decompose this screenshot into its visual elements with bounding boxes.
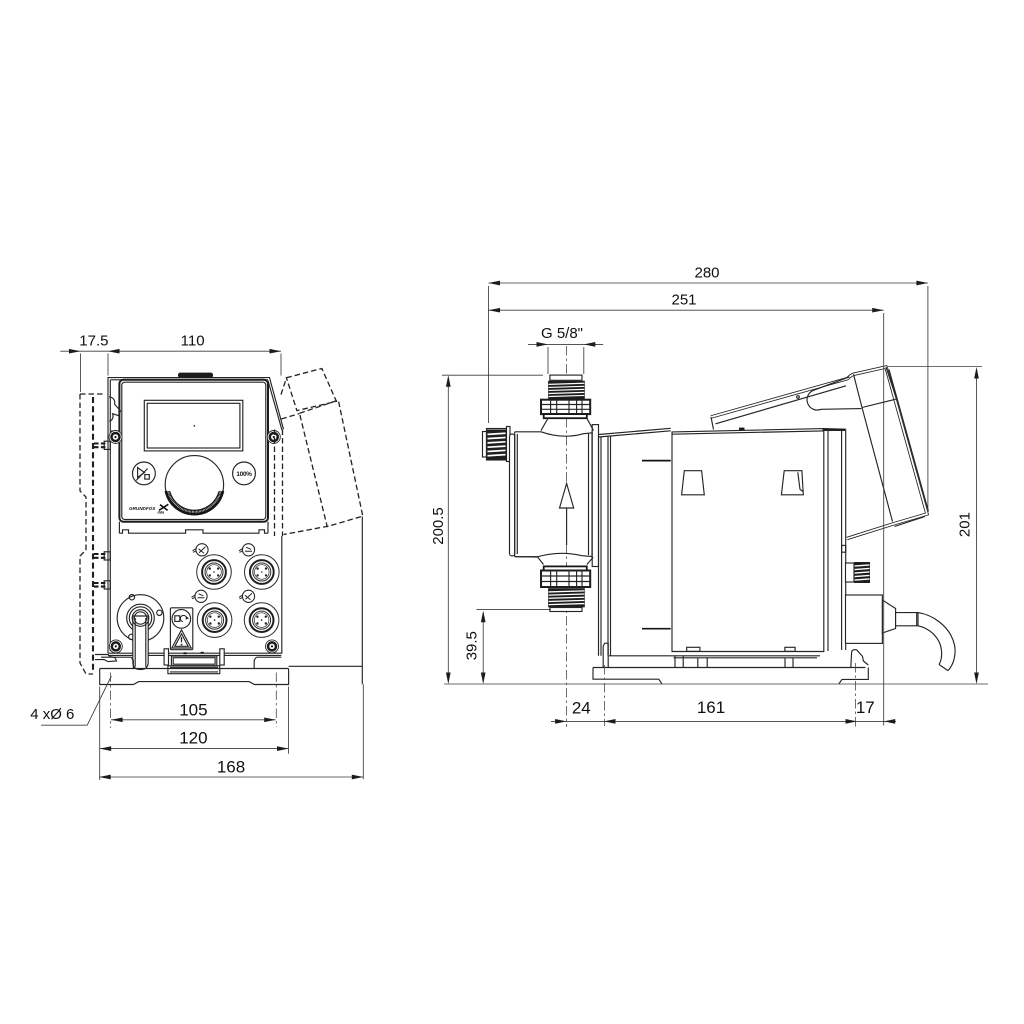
svg-text:161: 161 bbox=[697, 698, 725, 717]
svg-text:100%: 100% bbox=[236, 471, 252, 478]
svg-text:200.5: 200.5 bbox=[430, 507, 447, 545]
svg-text:105: 105 bbox=[179, 701, 207, 720]
svg-text:201: 201 bbox=[957, 512, 974, 537]
svg-text:120: 120 bbox=[179, 729, 207, 748]
svg-text:GRUNDFOS: GRUNDFOS bbox=[129, 506, 156, 511]
svg-text:251: 251 bbox=[671, 291, 696, 308]
svg-text:17: 17 bbox=[856, 698, 875, 717]
svg-text:4 xØ 6: 4 xØ 6 bbox=[30, 706, 74, 723]
svg-text:dda: dda bbox=[158, 511, 165, 515]
svg-text:17.5: 17.5 bbox=[79, 332, 108, 349]
svg-text:110: 110 bbox=[181, 332, 205, 349]
svg-text:168: 168 bbox=[217, 758, 245, 777]
svg-text:24: 24 bbox=[572, 699, 591, 718]
svg-text:280: 280 bbox=[694, 264, 719, 281]
svg-text:39.5: 39.5 bbox=[464, 631, 481, 660]
svg-text:G 5/8": G 5/8" bbox=[541, 325, 583, 342]
